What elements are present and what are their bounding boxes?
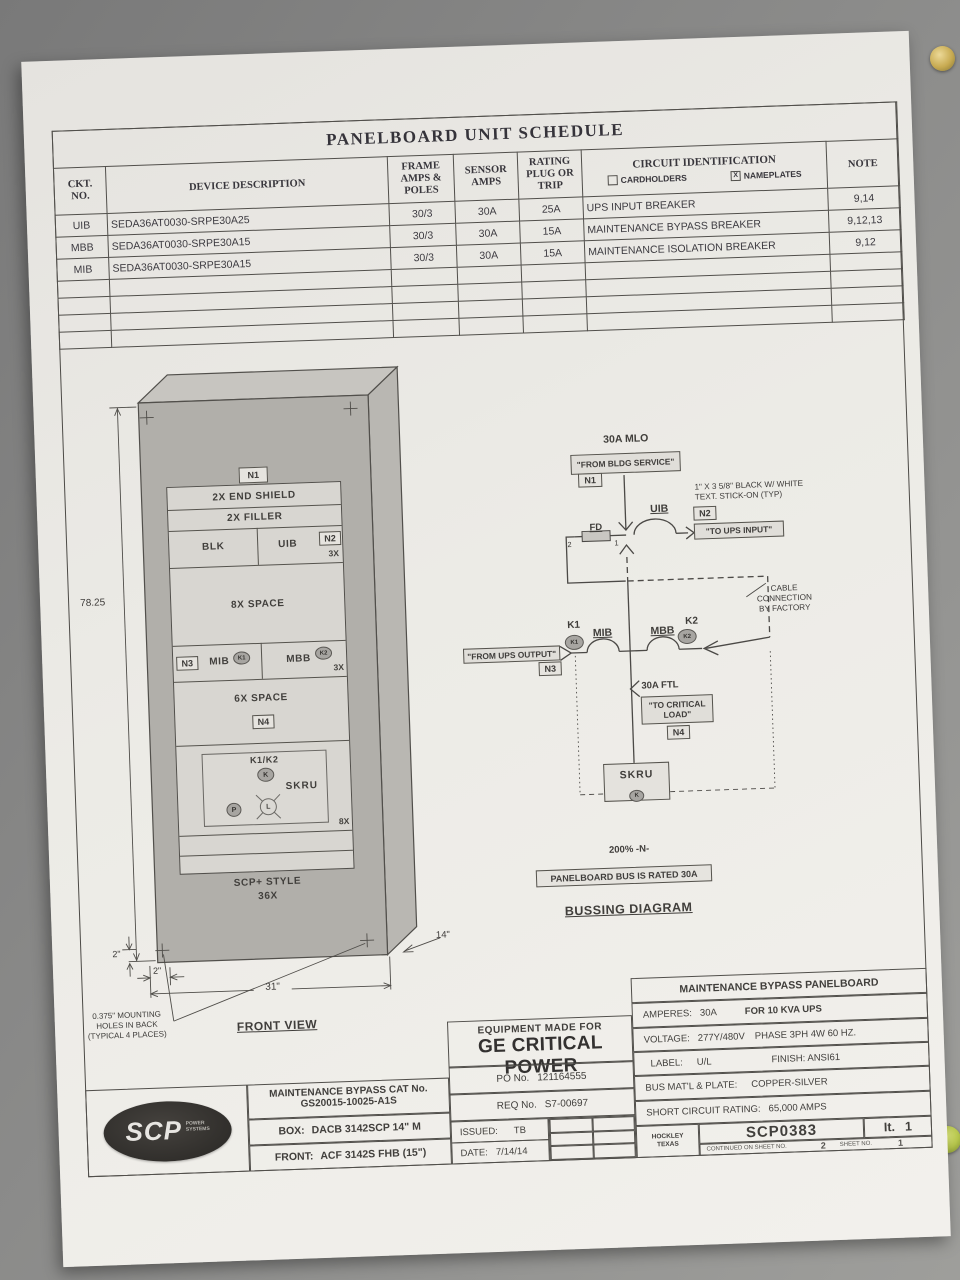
k1k2-label: K1/K2 xyxy=(203,753,326,767)
location-cell: HOCKLEY TEXAS xyxy=(636,1124,700,1158)
mlo-label: 30A MLO xyxy=(591,432,661,446)
fd-label: FD xyxy=(583,522,609,534)
voltage-value: 277Y/480V xyxy=(698,1031,745,1044)
skru-label: SKRU xyxy=(285,780,318,792)
req-label: REQ No. xyxy=(497,1100,537,1112)
bus-material-label: BUS MAT'L & PLATE: xyxy=(645,1079,737,1093)
col-frame-amps: FRAME AMPS & POLES xyxy=(387,154,455,203)
photo-background: PANELBOARD UNIT SCHEDULE CKT. NO. DEVICE… xyxy=(0,0,960,1280)
bussing-n3-tag: N3 xyxy=(538,661,561,676)
col-ckt-no: CKT. NO. xyxy=(53,166,107,215)
front-label: FRONT: xyxy=(275,1150,314,1163)
scp-logo-icon: SCP POWER SYSTEMS xyxy=(103,1099,233,1163)
fd-terminal-1: 1 xyxy=(614,538,618,547)
amperes-value: 30A xyxy=(700,1007,717,1019)
panel-screw-top-icon xyxy=(930,46,955,71)
cardholders-checkbox xyxy=(608,175,618,185)
bussing-mib-label: MIB xyxy=(586,626,618,639)
label-label: LABEL: xyxy=(650,1057,683,1069)
qty-3x-top: 3X xyxy=(328,548,339,558)
logo-text: SCP xyxy=(125,1115,183,1148)
from-bldg-service-box: "FROM BLDG SERVICE" xyxy=(570,451,681,475)
mib-label: MIB xyxy=(209,656,230,668)
mounting-holes-note: 0.375" MOUNTING HOLES IN BACK (TYPICAL 4… xyxy=(74,1009,179,1043)
bussing-n4-tag: N4 xyxy=(667,725,690,740)
phase-value: PHASE 3PH 4W 60 HZ. xyxy=(755,1027,857,1042)
qty-3x-bottom: 3X xyxy=(333,662,344,672)
fd-terminal-2: 2 xyxy=(567,540,571,549)
sheet-label: SHEET NO. xyxy=(840,1141,872,1148)
continued-value: 2 xyxy=(821,1140,826,1150)
box-label: BOX: xyxy=(278,1125,305,1138)
bussing-n2-tag: N2 xyxy=(693,506,716,521)
short-circuit-label: SHORT CIRCUIT RATING: xyxy=(646,1104,761,1119)
neutral-rating-label: 200% -N- xyxy=(597,843,661,856)
row-8x-space: 8X SPACE xyxy=(170,562,346,647)
date-label: DATE: xyxy=(460,1147,488,1159)
col-sensor-amps: SENSOR AMPS xyxy=(453,152,519,201)
date-cell: DATE: 7/14/14 xyxy=(451,1139,550,1164)
col-circuit-identification: CIRCUIT IDENTIFICATION CARDHOLDERS XNAME… xyxy=(581,141,827,197)
skru-unit: K1/K2 K SKRU P L xyxy=(201,750,328,827)
dim-offset-h: 2" xyxy=(153,966,162,976)
po-value: 121164555 xyxy=(537,1071,587,1084)
nameplates-checkbox: X xyxy=(731,171,741,181)
voltage-label: VOLTAGE: xyxy=(644,1033,690,1046)
item-value: 1 xyxy=(905,1119,912,1133)
short-circuit-value: 65,000 AMPS xyxy=(768,1101,826,1114)
mbb-label: MBB xyxy=(286,653,311,665)
cardholders-label: CARDHOLDERS xyxy=(621,173,687,185)
row-6x-space: 6X SPACE N4 xyxy=(174,676,349,747)
bussing-k1-label: K1 xyxy=(567,620,580,631)
to-critical-load-box: "TO CRITICAL LOAD" xyxy=(641,694,714,724)
to-ups-input-box: "TO UPS INPUT" xyxy=(694,521,785,540)
scp-style-note: SCP+ STYLE 36X xyxy=(205,874,331,906)
dim-height: 78.25 xyxy=(80,597,105,609)
equipment-made-for-cell: EQUIPMENT MADE FOR GE CRITICAL POWER xyxy=(447,1015,633,1067)
date-value: 7/14/14 xyxy=(496,1145,528,1157)
col-note: NOTE xyxy=(826,139,900,188)
logo-cell: SCP POWER SYSTEMS xyxy=(85,1085,250,1178)
blk-label: BLK xyxy=(169,540,257,554)
uib-label: UIB xyxy=(257,538,318,551)
sheet-value: 1 xyxy=(898,1138,903,1148)
drawing-sheet: PANELBOARD UNIT SCHEDULE CKT. NO. DEVICE… xyxy=(21,31,951,1267)
label-value: U/L xyxy=(697,1056,712,1068)
ftl-label: 30A FTL xyxy=(641,679,678,691)
item-cell: It. 1 xyxy=(864,1116,933,1138)
dim-width: 31" xyxy=(255,981,289,993)
continued-label: CONTINUED ON SHEET NO. xyxy=(707,1144,787,1153)
cable-connection-note: CABLE CONNECTION BY FACTORY xyxy=(742,582,827,615)
k2-contact-icon: K2 xyxy=(315,646,332,660)
bussing-uib-label: UIB xyxy=(641,502,677,515)
revision-grid xyxy=(548,1115,636,1161)
finish-value: FINISH: ANSI61 xyxy=(771,1051,840,1064)
issued-value: TB xyxy=(514,1124,527,1135)
amperes-label: AMPERES: xyxy=(643,1008,692,1021)
panel-interior: 2X END SHIELD 2X FILLER BLK UIB N2 3X 8X… xyxy=(166,481,354,875)
req-value: S7-00697 xyxy=(545,1098,589,1111)
po-label: PO No. xyxy=(496,1073,529,1085)
n3-tag: N3 xyxy=(176,656,198,671)
bussing-n1-tag: N1 xyxy=(578,473,602,488)
bussing-k2-label: K2 xyxy=(685,616,698,627)
ups-note: FOR 10 KVA UPS xyxy=(745,1004,822,1018)
panelboard-unit-schedule: PANELBOARD UNIT SCHEDULE CKT. NO. DEVICE… xyxy=(52,101,905,349)
n2-tag: N2 xyxy=(319,531,341,546)
qty-8x: 8X xyxy=(339,816,350,826)
front-value: ACF 3142S FHB (15") xyxy=(320,1146,426,1162)
l-lamp-icon: L xyxy=(252,790,285,823)
n4-tag: N4 xyxy=(252,714,274,729)
nameplates-label: NAMEPLATES xyxy=(744,169,802,181)
front-view-n1-tag: N1 xyxy=(239,467,269,484)
bussing-skru-box: SKRU K xyxy=(603,762,670,802)
col-rating-plug: RATING PLUG OR TRIP xyxy=(517,150,583,199)
k1-contact-icon: K1 xyxy=(233,651,250,665)
k-contact-icon: K xyxy=(257,767,274,782)
bus-material-value: COPPER-SILVER xyxy=(751,1076,828,1090)
row-skru: K1/K2 K SKRU P L 8X xyxy=(176,740,352,837)
item-label: It. xyxy=(884,1120,896,1134)
dim-offset-v: 2" xyxy=(112,949,121,959)
box-value: DACB 3142SCP 14" M xyxy=(311,1121,421,1137)
dim-depth: 14" xyxy=(436,929,450,940)
p-contact-icon: P xyxy=(226,803,241,818)
issued-label: ISSUED: xyxy=(460,1125,498,1137)
bussing-mbb-label: MBB xyxy=(645,624,679,637)
bussing-k-contact-icon: K xyxy=(629,790,644,803)
logo-subtext: POWER SYSTEMS xyxy=(186,1119,210,1132)
